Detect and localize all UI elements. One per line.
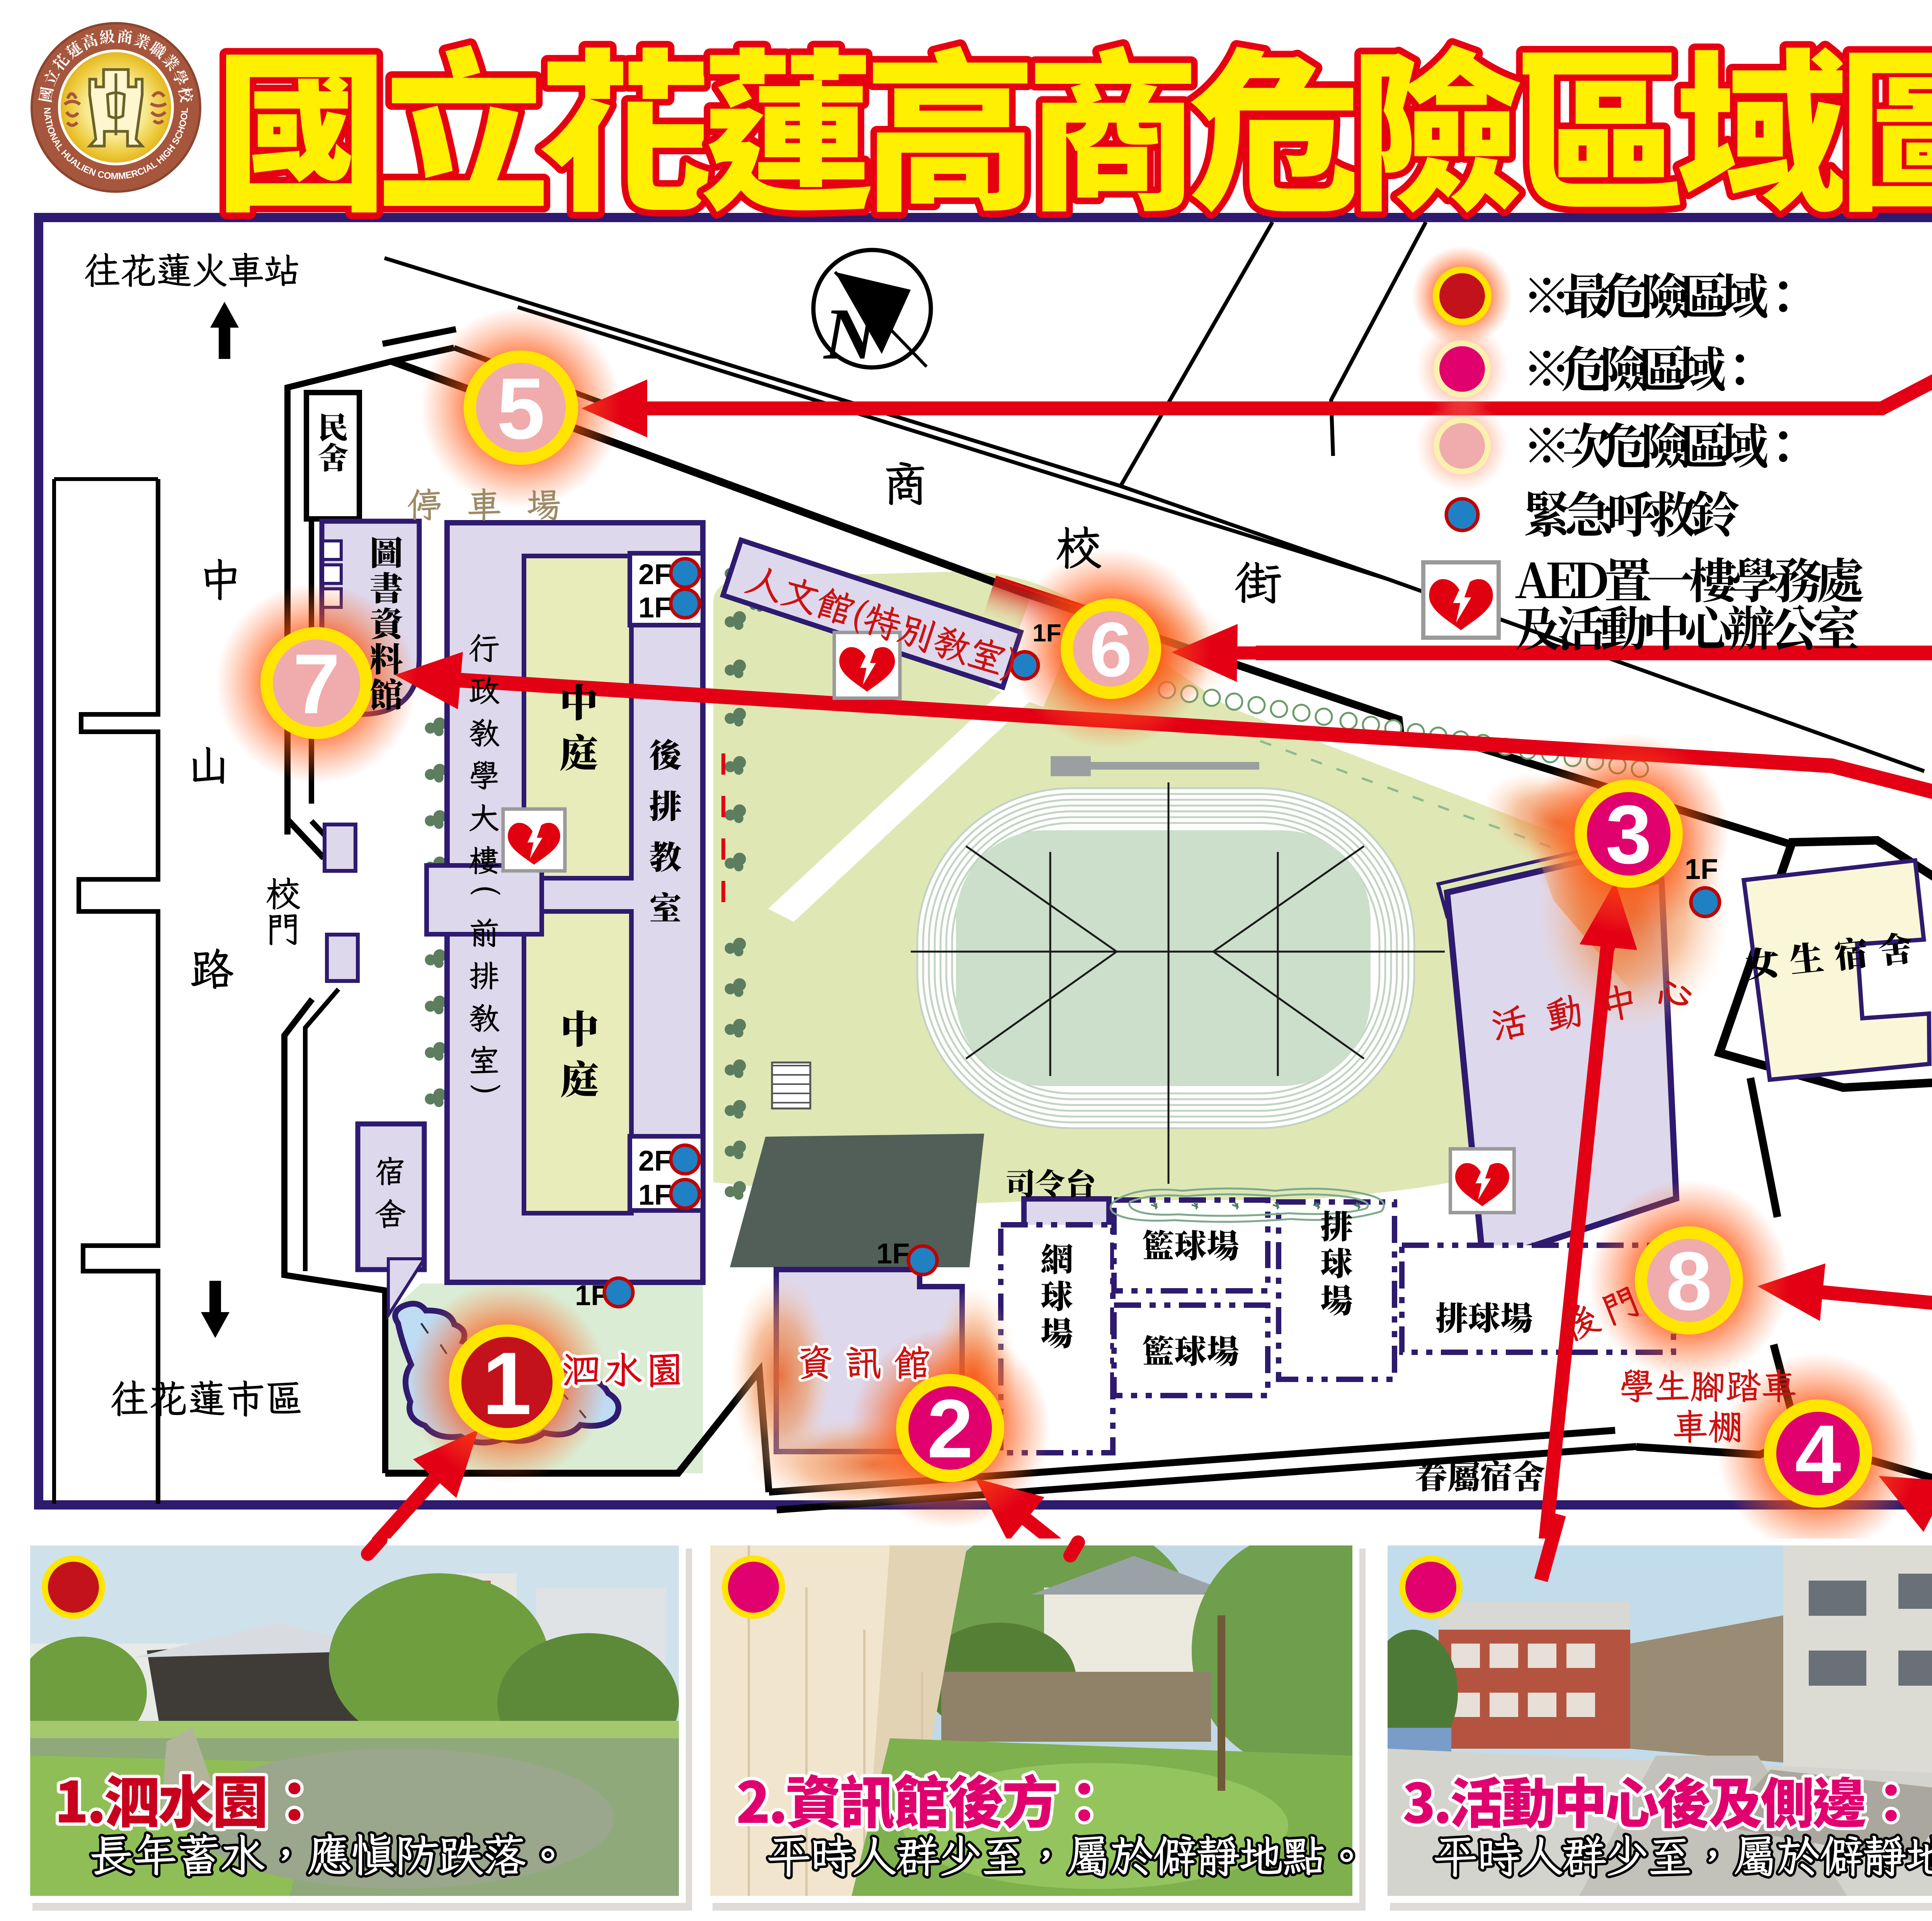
svg-text:4: 4 xyxy=(1795,1408,1841,1501)
svg-text:2F: 2F xyxy=(638,558,672,590)
svg-text:1F: 1F xyxy=(638,1179,672,1211)
svg-text:5: 5 xyxy=(497,360,545,457)
svg-text:8: 8 xyxy=(1666,1234,1712,1328)
svg-text:6: 6 xyxy=(1089,607,1132,693)
svg-text:2: 2 xyxy=(927,1382,973,1475)
svg-text:3: 3 xyxy=(1605,788,1652,881)
svg-text:7: 7 xyxy=(293,636,340,731)
svg-text:1F: 1F xyxy=(1032,619,1061,647)
svg-text:2F: 2F xyxy=(638,1145,672,1177)
svg-text:1F: 1F xyxy=(638,592,672,624)
svg-text:N: N xyxy=(823,294,879,375)
svg-text:1: 1 xyxy=(482,1334,532,1433)
svg-text:1F: 1F xyxy=(1685,853,1718,885)
svg-text:1F: 1F xyxy=(876,1238,910,1270)
